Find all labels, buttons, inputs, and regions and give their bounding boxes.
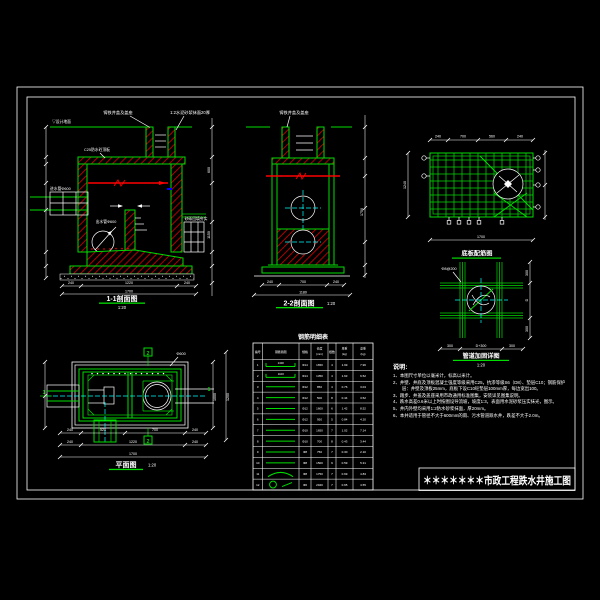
table-cell: 7 — [331, 450, 333, 454]
table-cell: 3.04 — [360, 385, 366, 389]
dim: 1000 — [213, 393, 217, 401]
dim: 240 — [517, 135, 523, 139]
dim: 700 — [300, 280, 306, 284]
table-cell: 0.30 — [342, 450, 348, 454]
dim: D — [525, 298, 529, 301]
annotation-rebar: Φ8@200 — [441, 267, 456, 271]
dim: 240 — [192, 440, 198, 444]
table-cell: 0.76 — [342, 385, 348, 389]
table-cell: 850 — [317, 385, 322, 389]
table-cell: 8.52 — [360, 407, 366, 411]
table-border — [253, 343, 373, 490]
dim-overall: 1700 — [129, 452, 137, 456]
table-cell: Φ6 — [303, 483, 307, 487]
table-cell: 700 — [317, 439, 322, 443]
table-cell: Φ14 — [302, 374, 308, 378]
dim: 240 — [184, 281, 190, 285]
annotation-cover: 铸铁井盖及盖座 — [103, 109, 132, 116]
view-section-1-1: 铸铁井盖及盖座 1:2水泥砂浆抹面20厚 ▽设计地面 C25防水砼顶板 进水管Φ… — [30, 109, 211, 310]
table-cell: Φ10 — [302, 439, 308, 443]
cad-sheet: 铸铁井盖及盖座 1:2水泥砂浆抹面20厚 ▽设计地面 C25防水砼顶板 进水管Φ… — [0, 0, 600, 600]
notes-heading: 说明: — [393, 362, 573, 371]
table-cell: 1 — [257, 363, 259, 367]
view-section-2-2: 铸铁井盖及盖座 240 700 240 1180 1750 2-2剖面图 1:2… — [246, 109, 364, 308]
table-cell: 8 — [331, 439, 333, 443]
table-cell: 9 — [257, 450, 259, 454]
table-cell: 0.84 — [342, 418, 348, 422]
drawing-title: ＊＊＊＊＊＊＊市政工程跌水井施工图 — [423, 474, 571, 487]
table-cell: 0.65 — [342, 483, 348, 487]
section-marker-2-bottom: 2 — [147, 439, 150, 445]
dim: 1700 — [477, 235, 485, 239]
table-cell: 7 — [257, 428, 259, 432]
label-underline — [453, 360, 509, 361]
table-header: 长度(mm) — [316, 346, 323, 357]
annotation-cover: 铸铁井盖及盖座 — [279, 109, 308, 116]
view-pipe-detail: Φ8@200 300 D+300 300 300 D 300 管道加固详图 1:… — [440, 262, 529, 368]
table-cell: 4.83 — [360, 472, 366, 476]
dim: 520 — [100, 428, 106, 432]
dim-overall: 1700 — [125, 290, 133, 294]
table-cell: 1750 — [316, 472, 323, 476]
table-cell: Φ12 — [302, 396, 308, 400]
table-cell: 6.52 — [360, 374, 366, 378]
table-cell: 4.55 — [360, 483, 366, 487]
dim: 1200 — [226, 393, 230, 401]
table-cell: 4 — [331, 363, 333, 367]
dim: 240 — [333, 280, 339, 284]
table-cell: 12 — [256, 483, 260, 487]
gravel-bed — [60, 274, 194, 280]
table-cell: 11 — [256, 472, 259, 476]
label-underline — [276, 307, 323, 308]
table-cell: 7.96 — [360, 363, 366, 367]
dim: 1220 — [129, 440, 137, 444]
dim: 240 — [435, 135, 441, 139]
table-cell: 7 — [331, 483, 333, 487]
table-cell: Φ8 — [303, 461, 307, 465]
annotation-ground: ▽设计地面 — [52, 119, 71, 124]
annotation-backfill: 砂砾回填夯实 — [185, 216, 208, 221]
dim: 300 — [509, 344, 515, 348]
blue-level-mark — [167, 188, 172, 190]
dim: 240 — [68, 281, 74, 285]
dim-overall: 1180 — [299, 291, 307, 295]
dim: 240 — [267, 280, 273, 284]
label-underline — [452, 258, 501, 259]
notes-block: 说明: 1、本图尺寸单位以毫米计，标高以米计。2、井壁、井底及顶板混凝土强度等级… — [393, 362, 573, 419]
dim: 700 — [460, 135, 466, 139]
view-plan: 2 2 1 1 Φ600 240 520 700 240 240 1220 24… — [40, 348, 230, 470]
table-cell: 6 — [331, 407, 333, 411]
table-header: 规格 — [302, 349, 308, 354]
table-cell: 7 — [331, 472, 333, 476]
table-cell: 750 — [317, 450, 322, 454]
table-cell: 4 — [331, 385, 333, 389]
table-cell: 0.69 — [342, 472, 348, 476]
table-cell: 4 — [331, 374, 333, 378]
table-header: 编号 — [255, 349, 261, 354]
view-scale: 1:20 — [118, 305, 127, 310]
view-label-pipe-detail: 管道加固详图 — [462, 352, 499, 360]
backfill-grid — [184, 222, 204, 252]
table-cell: Φ12 — [302, 418, 308, 422]
table-cell: 950 — [317, 418, 322, 422]
view-scale: 1:20 — [327, 301, 336, 306]
table-cell: 3.52 — [360, 396, 366, 400]
table-cell: 7 — [331, 428, 333, 432]
table-cell: 1.02 — [342, 428, 348, 432]
dim: 700 — [152, 428, 158, 432]
dim: 1150 — [207, 231, 211, 239]
table-cell: 5.31 — [360, 461, 366, 465]
view-label-section-2-2: 2-2剖面图 — [283, 299, 314, 308]
table-cell: Φ14 — [302, 363, 308, 367]
table-header: 单重(kg) — [342, 346, 348, 357]
rebar-schedule-table: 钢筋明细表编号钢筋简图规格长度(mm)根数单重(kg)总重(kg)1Φ14165… — [253, 333, 373, 490]
table-cell: 1350 — [316, 374, 323, 378]
cad-sheet-svg: 铸铁井盖及盖座 1:2水泥砂浆抹面20厚 ▽设计地面 C25防水砼顶板 进水管Φ… — [0, 0, 600, 600]
table-cell: 3.44 — [360, 439, 366, 443]
table-cell: 1.99 — [342, 363, 348, 367]
shape-length-label: 1100 — [278, 372, 284, 376]
dim: 1240 — [403, 181, 407, 189]
table-cell: 0.44 — [342, 396, 348, 400]
view-label-rebar-plan: 底板配筋图 — [462, 250, 493, 258]
dim: 300 — [447, 344, 453, 348]
table-cell: 0.43 — [342, 439, 348, 443]
note-item-5: 5、井内外壁均采用1:2防水砂浆抹面，厚20mm。 — [393, 406, 573, 413]
dim: 240 — [67, 440, 73, 444]
table-cell: 1.63 — [342, 374, 348, 378]
label-underline — [109, 469, 143, 470]
table-cell: 5 — [331, 418, 333, 422]
sump-box — [104, 387, 114, 404]
annotation-pipe-dia: Φ600 — [176, 352, 185, 356]
table-cell: 8 — [257, 439, 259, 443]
dim: 300 — [525, 270, 529, 276]
annotation-inlet: 进水管Φ600 — [50, 186, 71, 191]
table-cell: Φ12 — [302, 407, 308, 411]
table-title: 钢筋明细表 — [298, 333, 329, 341]
annotation-outlet: 出水管Φ600 — [96, 219, 117, 224]
table-cell: 3 — [257, 385, 259, 389]
dim: 600 — [207, 167, 211, 173]
title-block: ＊＊＊＊＊＊＊市政工程跌水井施工图 — [419, 468, 575, 491]
view-scale: 1:20 — [148, 463, 157, 468]
dim: 300 — [525, 326, 529, 332]
view-label-plan: 平面图 — [116, 460, 137, 469]
section-marker-1-right: 1 — [208, 387, 211, 393]
table-cell: 4.20 — [360, 418, 366, 422]
annotation-plaster: 1:2水泥砂浆抹面20厚 — [170, 109, 210, 116]
table-cell: 7.14 — [360, 428, 366, 432]
table-cell: Φ8 — [303, 450, 307, 454]
label-underline — [99, 303, 145, 304]
table-cell: 6 — [257, 418, 259, 422]
table-cell: 1650 — [316, 428, 323, 432]
table-cell: 2.10 — [360, 450, 366, 454]
note-item-1: 1、本图尺寸单位以毫米计，标高以米计。 — [393, 373, 573, 380]
dim: 560 — [489, 135, 495, 139]
dim: 240 — [192, 428, 198, 432]
table-cell: 4 — [257, 396, 259, 400]
table-cell: Φ10 — [302, 428, 308, 432]
table-header: 总重(kg) — [360, 346, 366, 357]
table-cell: 2940 — [316, 483, 323, 487]
dim: 240 — [67, 428, 73, 432]
table-cell: Φ8 — [303, 472, 307, 476]
view-label-section-1-1: 1-1剖面图 — [106, 294, 137, 303]
table-cell: 2 — [257, 374, 259, 378]
table-cell: 500 — [317, 396, 322, 400]
table-cell: 1.42 — [342, 407, 348, 411]
table-cell: 10 — [256, 461, 260, 465]
table-cell: 8 — [331, 396, 333, 400]
note-item-2: 2、井壁、井底及顶板混凝土强度等级采用C25，抗渗等级S6（D8）、垫层C10；… — [393, 380, 573, 393]
dim: 1220 — [125, 281, 133, 285]
table-cell: 1650 — [316, 363, 323, 367]
table-cell: 1600 — [316, 407, 323, 411]
table-cell: 5 — [257, 407, 259, 411]
table-cell: Φ12 — [302, 385, 308, 389]
shape-length-label: 1400 — [278, 361, 285, 365]
note-item-6: 6、本井适用于管径不大于600mm的雨、污水管道跌水井，跌差不大于2.0m。 — [393, 413, 573, 420]
dim: D+300 — [476, 344, 487, 348]
table-cell: 1500 — [316, 461, 323, 465]
table-cell: 9 — [331, 461, 333, 465]
table-cell: 0.59 — [342, 461, 348, 465]
table-header: 根数 — [329, 349, 335, 354]
annotation-slab: C25防水砼顶板 — [84, 147, 110, 152]
table-header: 钢筋简图 — [275, 349, 287, 354]
